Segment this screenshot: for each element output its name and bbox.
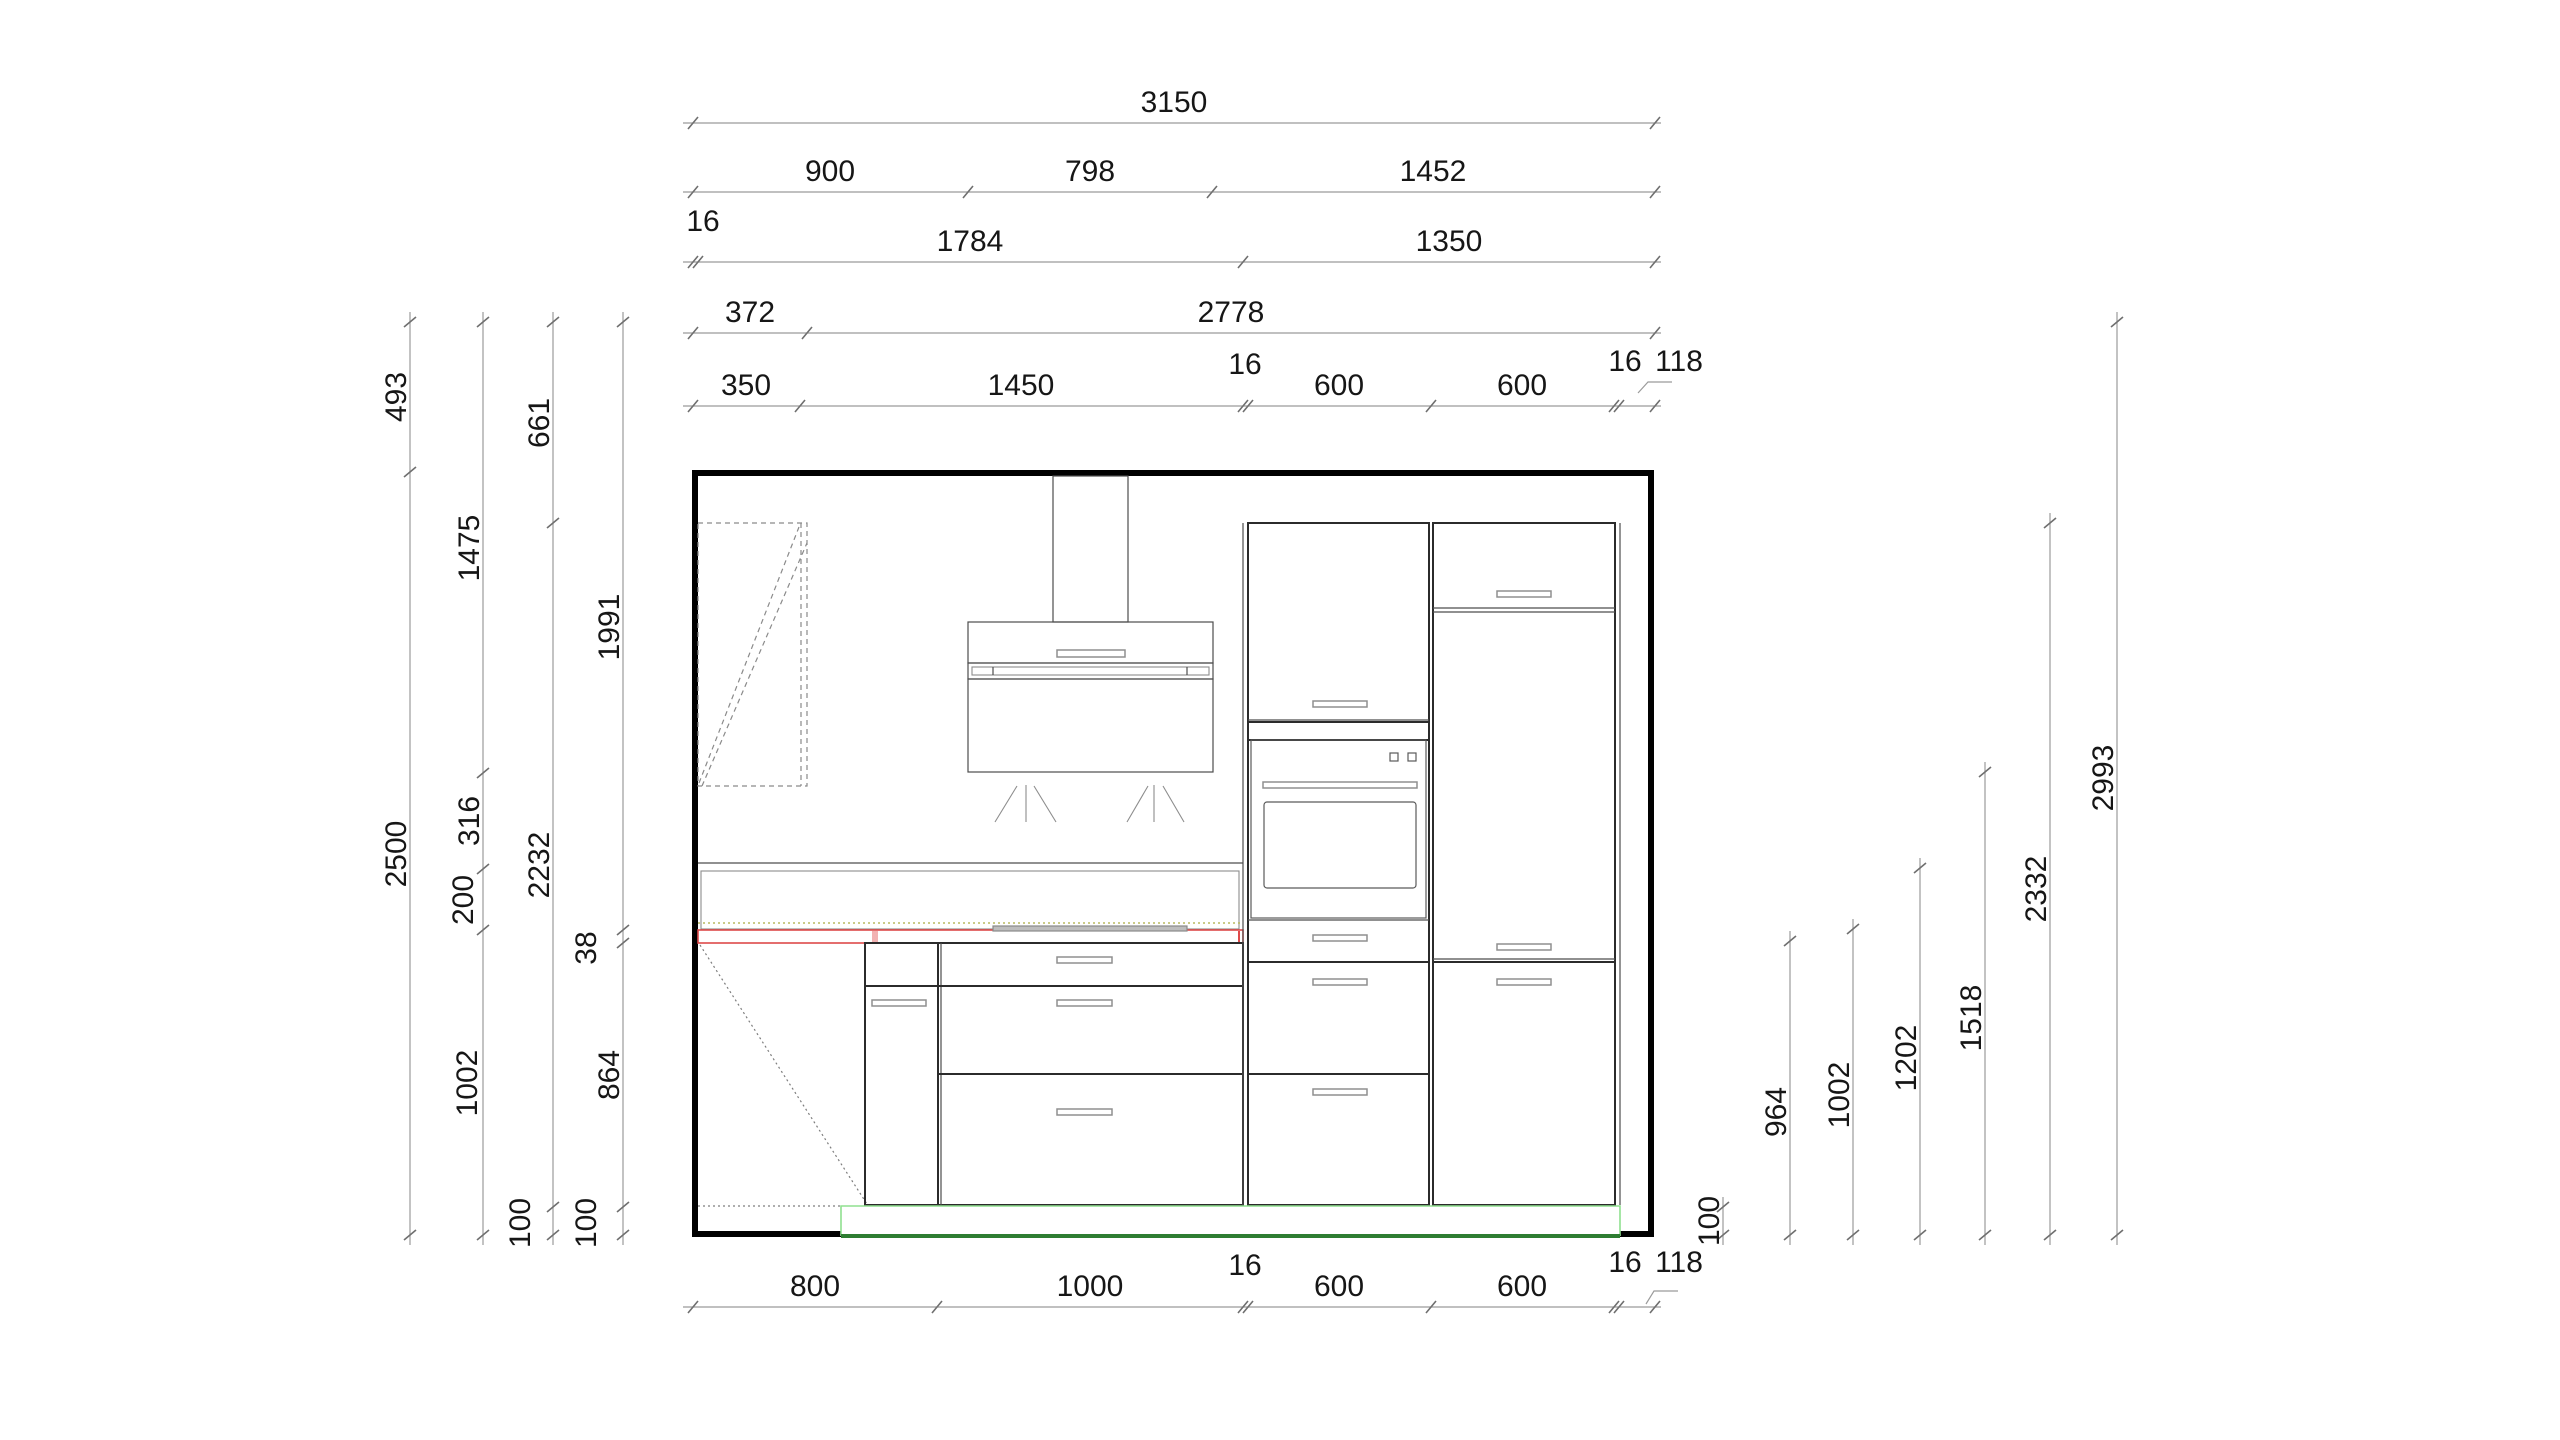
dim-label: 1350 bbox=[1416, 225, 1483, 258]
dim-label: 600 bbox=[1314, 1270, 1364, 1303]
room-outline bbox=[695, 473, 1651, 1234]
dim-label: 1202 bbox=[1890, 1025, 1923, 1092]
base-cabinet-door-unit bbox=[865, 943, 938, 1205]
oven-handle-bar bbox=[1263, 782, 1417, 788]
extractor-hood bbox=[968, 476, 1213, 822]
dim-label: 118 bbox=[1655, 1246, 1703, 1279]
door-handle bbox=[1497, 591, 1551, 597]
opening-swing-line bbox=[702, 543, 807, 786]
dim-label: 1784 bbox=[937, 225, 1004, 258]
worktop-band bbox=[698, 930, 1243, 943]
right-dimension-columns: 100 964 1002 1202 1518 2332 bbox=[1693, 312, 2123, 1246]
worktop bbox=[698, 930, 1243, 943]
leader-flag bbox=[1638, 382, 1672, 393]
dim-label: 1518 bbox=[1955, 985, 1988, 1052]
hood-chimney bbox=[1053, 476, 1128, 622]
opening-swing-line bbox=[699, 527, 799, 783]
leader-flag bbox=[1646, 1291, 1678, 1304]
dim-label: 100 bbox=[1693, 1196, 1726, 1246]
dim-label: 2993 bbox=[2087, 745, 2120, 812]
dim-label: 118 bbox=[1655, 345, 1703, 378]
drawer-handle bbox=[1313, 979, 1367, 985]
dim-label: 16 bbox=[1608, 345, 1641, 378]
dim-col-hood-bottom-height: 1518 bbox=[1955, 762, 1991, 1245]
dim-col-total-height: 2993 bbox=[2087, 312, 2123, 1245]
dim-col-worktop: 1991 38 864 100 bbox=[570, 312, 629, 1248]
dim-label: 372 bbox=[725, 296, 775, 329]
window-opening bbox=[698, 523, 807, 786]
oven-window bbox=[1264, 802, 1416, 888]
dim-label: 1475 bbox=[453, 515, 486, 582]
drawer-handle bbox=[1313, 1089, 1367, 1095]
dim-label: 100 bbox=[570, 1198, 603, 1248]
dim-label: 2500 bbox=[380, 821, 413, 888]
dim-col-niche-height: 1202 bbox=[1890, 858, 1926, 1245]
dim-label: 316 bbox=[453, 796, 486, 846]
dim-col-worktop-height: 1002 bbox=[1823, 919, 1859, 1245]
dim-label: 38 bbox=[570, 931, 603, 964]
top-dimension-rows: 3150 900 798 1452 16 1784 1350 372 2778 … bbox=[683, 86, 1703, 412]
built-in-oven bbox=[1251, 740, 1426, 918]
dim-label: 16 bbox=[686, 205, 719, 238]
hood-handle bbox=[1057, 650, 1125, 657]
plinth-line bbox=[841, 1206, 1620, 1236]
hood-glass-inner bbox=[972, 667, 1209, 675]
drawer-handle bbox=[1057, 957, 1112, 963]
tall-oven-unit bbox=[1243, 523, 1429, 1205]
dim-label: 1002 bbox=[1823, 1062, 1856, 1129]
dim-row-opening: 372 2778 bbox=[683, 296, 1661, 339]
dim-row-cabinets-top: 350 1450 16 600 600 16 118 bbox=[683, 345, 1703, 412]
dim-col-plinth-height: 100 bbox=[1693, 1196, 1729, 1246]
dim-col-tall-unit-height: 2332 bbox=[2020, 513, 2056, 1245]
bottom-dimension-row: 800 1000 16 600 600 16 118 bbox=[683, 1246, 1703, 1313]
dim-label: 800 bbox=[790, 1270, 840, 1303]
dim-label: 661 bbox=[523, 398, 556, 448]
dim-label: 864 bbox=[593, 1050, 626, 1100]
door-handle bbox=[1497, 979, 1551, 985]
dim-label: 798 bbox=[1065, 155, 1115, 188]
tall-fridge-unit bbox=[1433, 523, 1620, 1205]
hood-lower-body bbox=[968, 679, 1213, 772]
niche-backsplash bbox=[698, 863, 1243, 929]
base-cabinet-drawer-unit bbox=[938, 943, 1243, 1205]
dim-label: 2232 bbox=[523, 832, 556, 899]
kitchen-elevation-view: 3150 900 798 1452 16 1784 1350 372 2778 … bbox=[0, 0, 2560, 1440]
door-handle bbox=[1313, 701, 1367, 707]
cad-canvas: 3150 900 798 1452 16 1784 1350 372 2778 … bbox=[0, 0, 2560, 1440]
dim-label: 600 bbox=[1497, 369, 1547, 402]
drawer-handle bbox=[1057, 1109, 1112, 1115]
dim-label: 600 bbox=[1497, 1270, 1547, 1303]
oven-control-knob bbox=[1390, 753, 1398, 761]
dim-label: 2332 bbox=[2020, 856, 2053, 923]
dim-label: 2778 bbox=[1198, 296, 1265, 329]
dim-label-overall-width: 3150 bbox=[1141, 86, 1208, 119]
dishwasher-outline bbox=[698, 945, 867, 1206]
dim-label: 16 bbox=[1228, 1249, 1261, 1282]
steam-arrows bbox=[995, 785, 1184, 822]
dim-row-runs: 16 1784 1350 bbox=[683, 205, 1661, 268]
cooktop bbox=[993, 926, 1187, 931]
dim-label: 350 bbox=[721, 369, 771, 402]
dim-col-niche: 1475 316 200 1002 bbox=[447, 312, 489, 1245]
door-handle bbox=[1497, 944, 1551, 950]
dim-label: 1991 bbox=[593, 594, 626, 661]
dim-col-ceiling-total: 493 2500 bbox=[380, 312, 416, 1245]
dim-label: 900 bbox=[805, 155, 855, 188]
hood-glass-band bbox=[968, 663, 1213, 679]
oven-control-knob bbox=[1408, 753, 1416, 761]
dim-label: 964 bbox=[1760, 1087, 1793, 1137]
dim-label: 200 bbox=[447, 875, 480, 925]
dim-label: 100 bbox=[504, 1198, 537, 1248]
dim-col-tall-units: 661 2232 100 bbox=[504, 312, 559, 1248]
dim-col-base-height: 964 bbox=[1760, 931, 1796, 1245]
dim-label: 1000 bbox=[1057, 1270, 1124, 1303]
dim-label: 1452 bbox=[1400, 155, 1467, 188]
dim-row-overall-width: 3150 bbox=[683, 86, 1661, 129]
door-handle bbox=[872, 1000, 926, 1006]
dim-label: 600 bbox=[1314, 369, 1364, 402]
vent-band bbox=[1248, 722, 1429, 740]
dim-row-zones: 900 798 1452 bbox=[683, 155, 1661, 198]
niche-panel bbox=[701, 871, 1239, 929]
dim-label: 16 bbox=[1608, 1246, 1641, 1279]
dim-label: 1450 bbox=[988, 369, 1055, 402]
dim-label: 493 bbox=[380, 372, 413, 422]
drawer-handle bbox=[1313, 935, 1367, 941]
dim-label: 16 bbox=[1228, 348, 1261, 381]
left-dimension-columns: 493 2500 1475 316 200 1002 661 2232 100 … bbox=[380, 312, 629, 1248]
dim-label: 1002 bbox=[451, 1050, 484, 1117]
drawer-handle bbox=[1057, 1000, 1112, 1006]
